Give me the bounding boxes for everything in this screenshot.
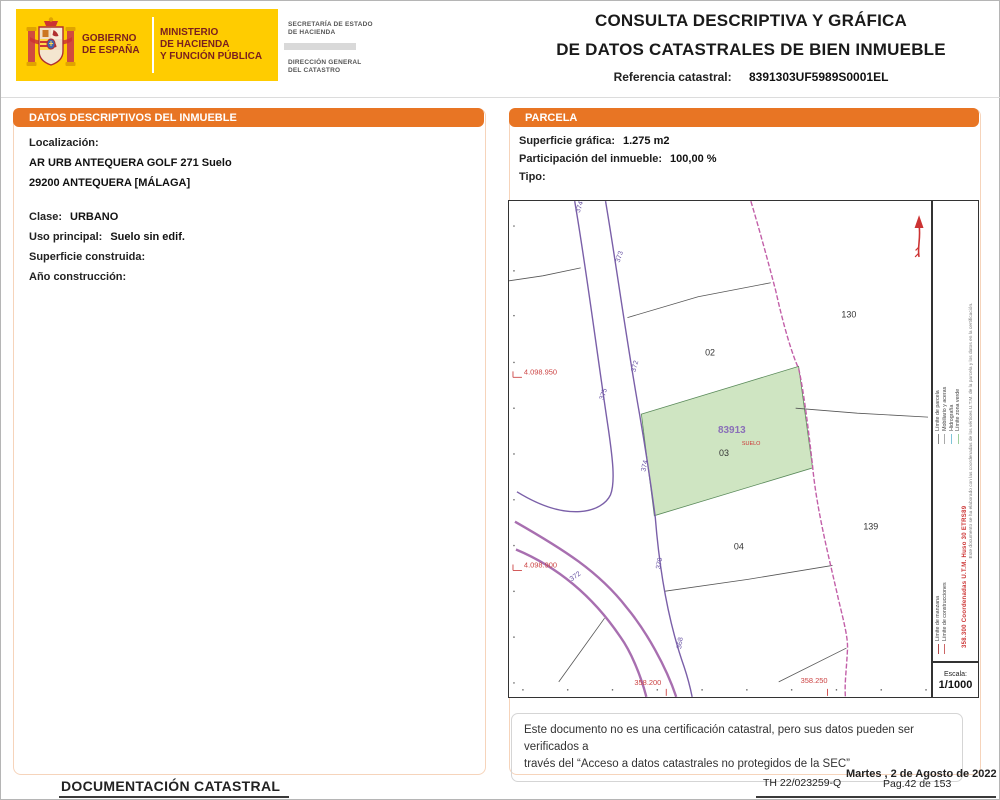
svg-text:368: 368 [676,637,685,650]
localizacion-address-line1: AR URB ANTEQUERA GOLF 271 Suelo [29,153,469,173]
highlight-parcel-id: 83913 [718,425,746,436]
cadastral-map: 374 373 372 375 374 372 370 368 02 130 0… [508,200,932,698]
tipo-label: Tipo: [519,168,546,186]
legend-dash-manzana [938,644,939,654]
verification-note-line1: Este documento no es una certificación c… [524,722,950,756]
clase-value: URBANO [70,207,118,227]
header-rule [1,97,1000,98]
uso-principal-label: Uso principal: [29,227,102,247]
title-line1: CONSULTA DESCRIPTIVA Y GRÁFICA [521,11,981,31]
svg-text:358.250: 358.250 [801,676,828,685]
footer-reference: TH 22/023259-Q [763,777,841,789]
svg-text:02: 02 [705,347,715,357]
localizacion-label: Localización: [29,133,469,153]
cadastral-document-page: { "header": { "logo": { "gobierno_line1"… [0,0,1000,800]
highlight-parcel-type: SUELO [742,441,761,447]
clase-label: Clase: [29,207,62,227]
north-arrow-icon [915,215,924,257]
highlighted-parcel-shape [641,366,812,515]
svg-text:375: 375 [599,388,609,401]
parcela-title: PARCELA [525,112,577,124]
cadastral-map-drawing: 374 373 372 375 374 372 370 368 02 130 0… [509,201,931,697]
spain-coat-of-arms-icon [22,15,80,75]
legend-dash-zona-verde [958,434,959,444]
map-legend-strip: Límite de manzana Límite de parcela Lími… [932,200,979,662]
footer-underline-left [59,796,289,798]
anio-construccion-label: Año construcción: [29,267,126,287]
gobierno-label-line2: DE ESPAÑA [82,45,148,57]
legend-limite-zona-verde: Límite zona verde [955,389,961,431]
secretaria-de-estado-label: SECRETARÍA DE ESTADO DE HACIENDA [288,21,374,37]
cadastral-reference-label: Referencia catastral: [614,70,732,84]
legend-limite-manzana: Límite de manzana [935,596,941,641]
footer-underline-right [756,796,996,798]
svg-text:372: 372 [569,571,583,583]
participacion-value: 100,00 % [670,150,716,168]
legend-dash-mobiliario [944,434,945,444]
legend-disclaimer-text: Este documento se ha elaborado con las c… [969,207,975,654]
gobierno-label-line1: GOBIERNO [82,33,148,45]
uso-principal-value: Suelo sin edif. [110,227,185,247]
ministerio-label-line3: Y FUNCIÓN PÚBLICA [160,51,262,63]
participacion-label: Participación del inmueble: [519,150,662,168]
legend-limite-parcela: Límite de parcela [935,390,941,431]
ministerio-label-line2: DE HACIENDA [160,39,262,51]
svg-text:4.098.900: 4.098.900 [524,560,557,569]
parcela-header: PARCELA [509,108,979,127]
svg-text:373: 373 [615,250,625,263]
header-gray-divider [284,43,356,50]
government-logo: GOBIERNO DE ESPAÑA MINISTERIO DE HACIEND… [16,9,278,81]
legend-hidrografia: Hidrografía [949,405,955,431]
ministerio-label-line1: MINISTERIO [160,27,262,39]
superficie-grafica-value: 1.275 m2 [623,132,669,150]
legend-dash-hidrografia [951,434,952,444]
svg-text:374: 374 [575,201,585,214]
svg-text:372: 372 [631,360,641,373]
scale-box: Escala: 1/1000 [932,662,979,698]
scale-value: 1/1000 [939,680,973,691]
datos-descriptivos-title: DATOS DESCRIPTIVOS DEL INMUEBLE [29,112,237,124]
documentacion-catastral-label: DOCUMENTACIÓN CATASTRAL [61,778,280,794]
footer-page-number: Pag.42 de 153 [883,778,951,790]
superficie-grafica-label: Superficie gráfica: [519,132,615,150]
legend-mobiliario-aceras: Mobiliario y aceras [942,387,948,431]
legend-dash-parcela [938,434,939,444]
svg-text:130: 130 [841,310,856,320]
svg-text:358.200: 358.200 [634,678,661,687]
svg-text:04: 04 [734,542,744,552]
cadastral-reference-value: 8391303UF5989S0001EL [749,70,888,84]
legend-limite-construcciones: Límite de construcciones [942,582,948,641]
legend-utm-coords-text: 358.300 Coordenadas U.T.M. Huso 30 ETRS8… [962,207,969,648]
direccion-general-label: DIRECCIÓN GENERAL DEL CATASTRO [288,59,374,75]
svg-text:4.098.950: 4.098.950 [524,367,557,376]
localizacion-address-line2: 29200 ANTEQUERA [MÁLAGA] [29,173,469,193]
legend-dash-construcciones [944,644,945,654]
logo-divider [152,17,154,73]
svg-text:370: 370 [655,557,664,570]
superficie-construida-label: Superficie construida: [29,247,145,267]
highlight-parcel-number: 03 [719,448,729,458]
document-title: CONSULTA DESCRIPTIVA Y GRÁFICA DE DATOS … [521,11,981,84]
svg-text:139: 139 [863,522,878,532]
title-line2: DE DATOS CATASTRALES DE BIEN INMUEBLE [521,40,981,60]
datos-descriptivos-header: DATOS DESCRIPTIVOS DEL INMUEBLE [13,108,484,127]
